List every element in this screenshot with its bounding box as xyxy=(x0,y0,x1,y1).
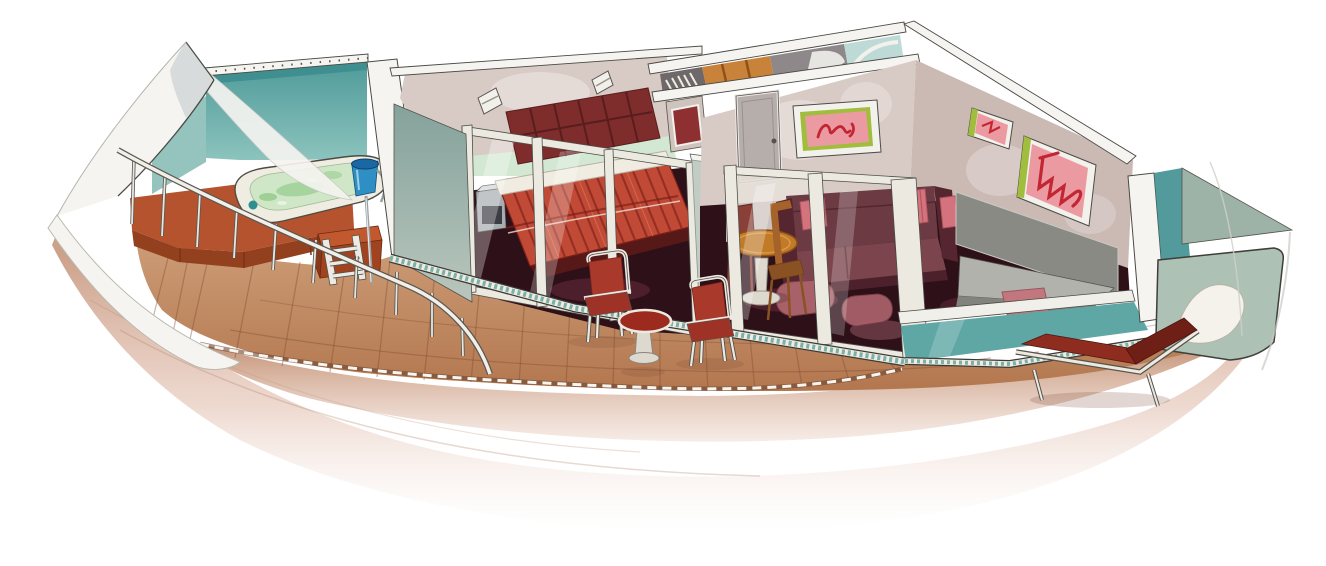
aft-glass-screen xyxy=(1156,248,1284,360)
artwork-script xyxy=(793,100,881,158)
armchair xyxy=(842,294,892,326)
ice-bucket xyxy=(352,159,379,196)
tub-drain xyxy=(249,201,258,210)
illustration-canvas xyxy=(0,0,1326,566)
throw-pillow xyxy=(940,196,958,228)
door-knob xyxy=(772,139,777,144)
sofa xyxy=(776,186,958,296)
suite-cutaway-illustration xyxy=(0,0,1326,566)
mirror-niche xyxy=(666,96,707,152)
